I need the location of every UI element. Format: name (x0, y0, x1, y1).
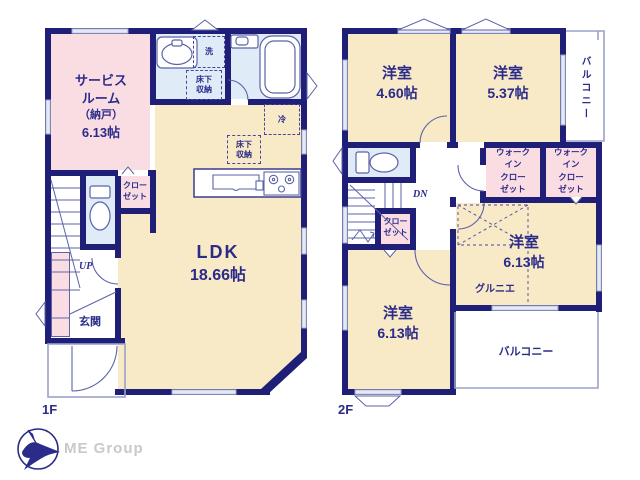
ldk-size: 18.66帖 (158, 265, 278, 287)
bedroom-613-east-label: 洋室 6.13帖 (474, 232, 574, 273)
refrigerator-space: 冷 (264, 104, 300, 135)
entrance-label: 玄関 (70, 315, 110, 330)
bedroom-613-south-label: 洋室 6.13帖 (348, 303, 448, 344)
bedroom-460-door-arc (420, 116, 447, 143)
closet-1f-label: クロー ゼット (118, 181, 152, 203)
wic-2-label: ウォーク イン クロー ゼット (546, 146, 596, 195)
bathtub (231, 35, 300, 98)
washbasin-1f (157, 37, 197, 68)
service-room-size: 6.13帖 (55, 124, 147, 142)
toilet-1f-fixture (90, 186, 110, 230)
stairs-1f (51, 180, 80, 290)
me-group-logo-bird-icon (18, 429, 60, 470)
bedroom-537-label: 洋室 5.37帖 (458, 63, 558, 104)
floor1-label: 1F (42, 401, 57, 419)
grenier-label: グルニエ (460, 283, 530, 297)
company-name: ME Group (64, 440, 144, 457)
ldk-name: LDK (158, 240, 278, 265)
underfloor-storage-2: 床下 収納 (227, 135, 261, 164)
stairs-up-label: UP (79, 260, 92, 274)
entrance-door-arc (72, 346, 117, 391)
bedroom-613-south-door-arc (415, 250, 450, 285)
kitchen-stove (264, 172, 299, 195)
laundry-space: 洗 (193, 36, 225, 68)
wic-door-arc (458, 165, 484, 191)
bedroom-460-label: 洋室 4.60帖 (347, 63, 447, 104)
floor-plan-canvas: サービス ルーム （納戸） 6.13帖 LDK 18.66帖 玄関 UP クロー… (0, 0, 640, 480)
hall-ldk-door-arc (92, 258, 118, 284)
closet-2f-label: クロー ゼット (379, 217, 412, 239)
wic-1-label: ウォーク イン クロー ゼット (487, 146, 539, 195)
underfloor-storage-1: 床下 収納 (186, 70, 222, 100)
bedroom-613-east-door-arc (458, 203, 484, 229)
ldk-label: LDK 18.66帖 (158, 240, 278, 288)
service-room-line2: ルーム (55, 90, 147, 108)
floor2-label: 2F (338, 401, 353, 419)
toilet-2f-fixture (356, 152, 398, 173)
balcony-south-label: バルコニー (476, 345, 576, 360)
kitchen-sink (213, 175, 259, 191)
stairs-down-label: DN (413, 188, 427, 202)
service-room-line1: サービス (55, 72, 147, 90)
service-room-label: サービス ルーム （納戸） 6.13帖 (55, 72, 147, 142)
service-room-line3: （納戸） (55, 108, 147, 123)
kitchen-counter (194, 169, 301, 197)
balcony-east-label: バルコニー (577, 56, 591, 121)
